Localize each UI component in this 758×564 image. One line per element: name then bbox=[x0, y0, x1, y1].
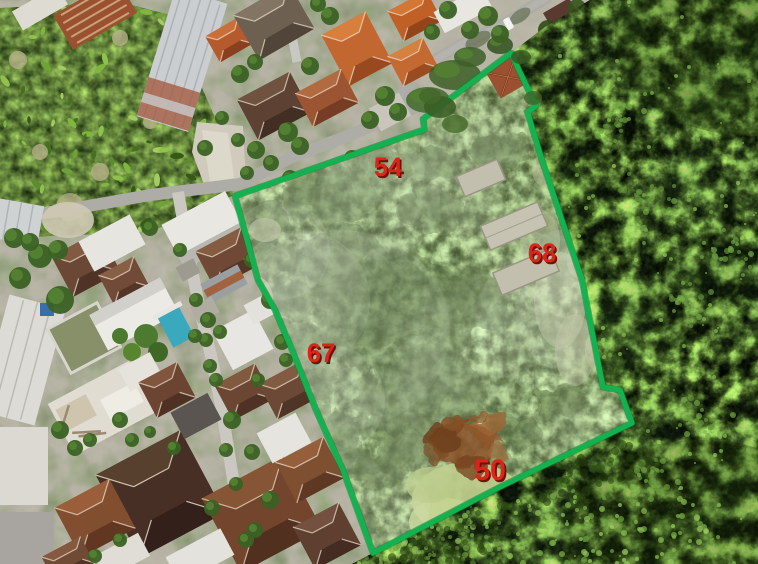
svg-text:68: 68 bbox=[528, 237, 557, 268]
svg-text:54: 54 bbox=[374, 151, 403, 182]
svg-text:50: 50 bbox=[474, 454, 506, 487]
svg-text:67: 67 bbox=[307, 337, 336, 368]
